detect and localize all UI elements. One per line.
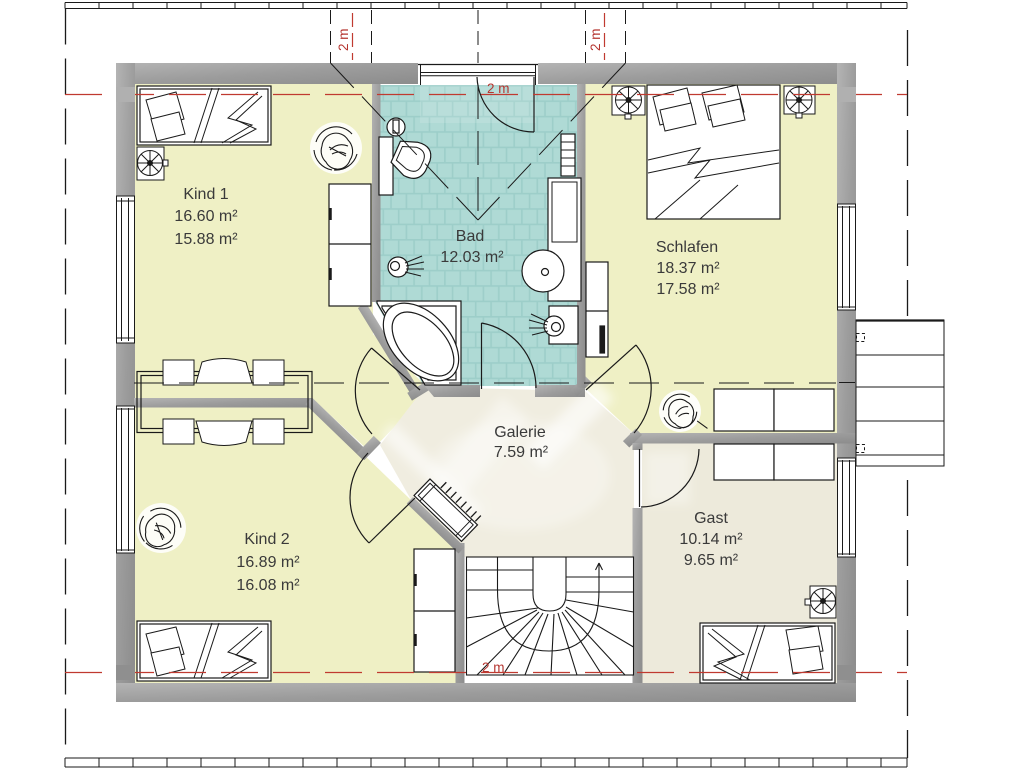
svg-text:2 m: 2 m [487, 81, 510, 96]
svg-text:17.58 m²: 17.58 m² [656, 281, 720, 298]
svg-text:18.37 m²: 18.37 m² [656, 260, 720, 277]
svg-text:16.60 m²: 16.60 m² [174, 208, 238, 225]
svg-text:2 m: 2 m [588, 28, 603, 51]
svg-text:2 m: 2 m [336, 28, 351, 51]
svg-text:Gast: Gast [694, 510, 728, 527]
svg-text:12.03 m²: 12.03 m² [440, 249, 504, 266]
svg-text:Kind 1: Kind 1 [183, 186, 228, 203]
svg-text:Kind 2: Kind 2 [244, 531, 289, 548]
svg-text:Bad: Bad [456, 228, 484, 245]
svg-text:15.88 m²: 15.88 m² [174, 231, 238, 248]
svg-text:10.14 m²: 10.14 m² [679, 531, 743, 548]
svg-text:2 m: 2 m [482, 660, 505, 675]
svg-text:16.89 m²: 16.89 m² [236, 554, 300, 571]
svg-text:Schlafen: Schlafen [656, 239, 718, 256]
svg-text:Galerie: Galerie [494, 424, 546, 441]
svg-text:7.59 m²: 7.59 m² [494, 444, 549, 461]
svg-text:9.65 m²: 9.65 m² [684, 552, 739, 569]
svg-text:16.08 m²: 16.08 m² [236, 577, 300, 594]
